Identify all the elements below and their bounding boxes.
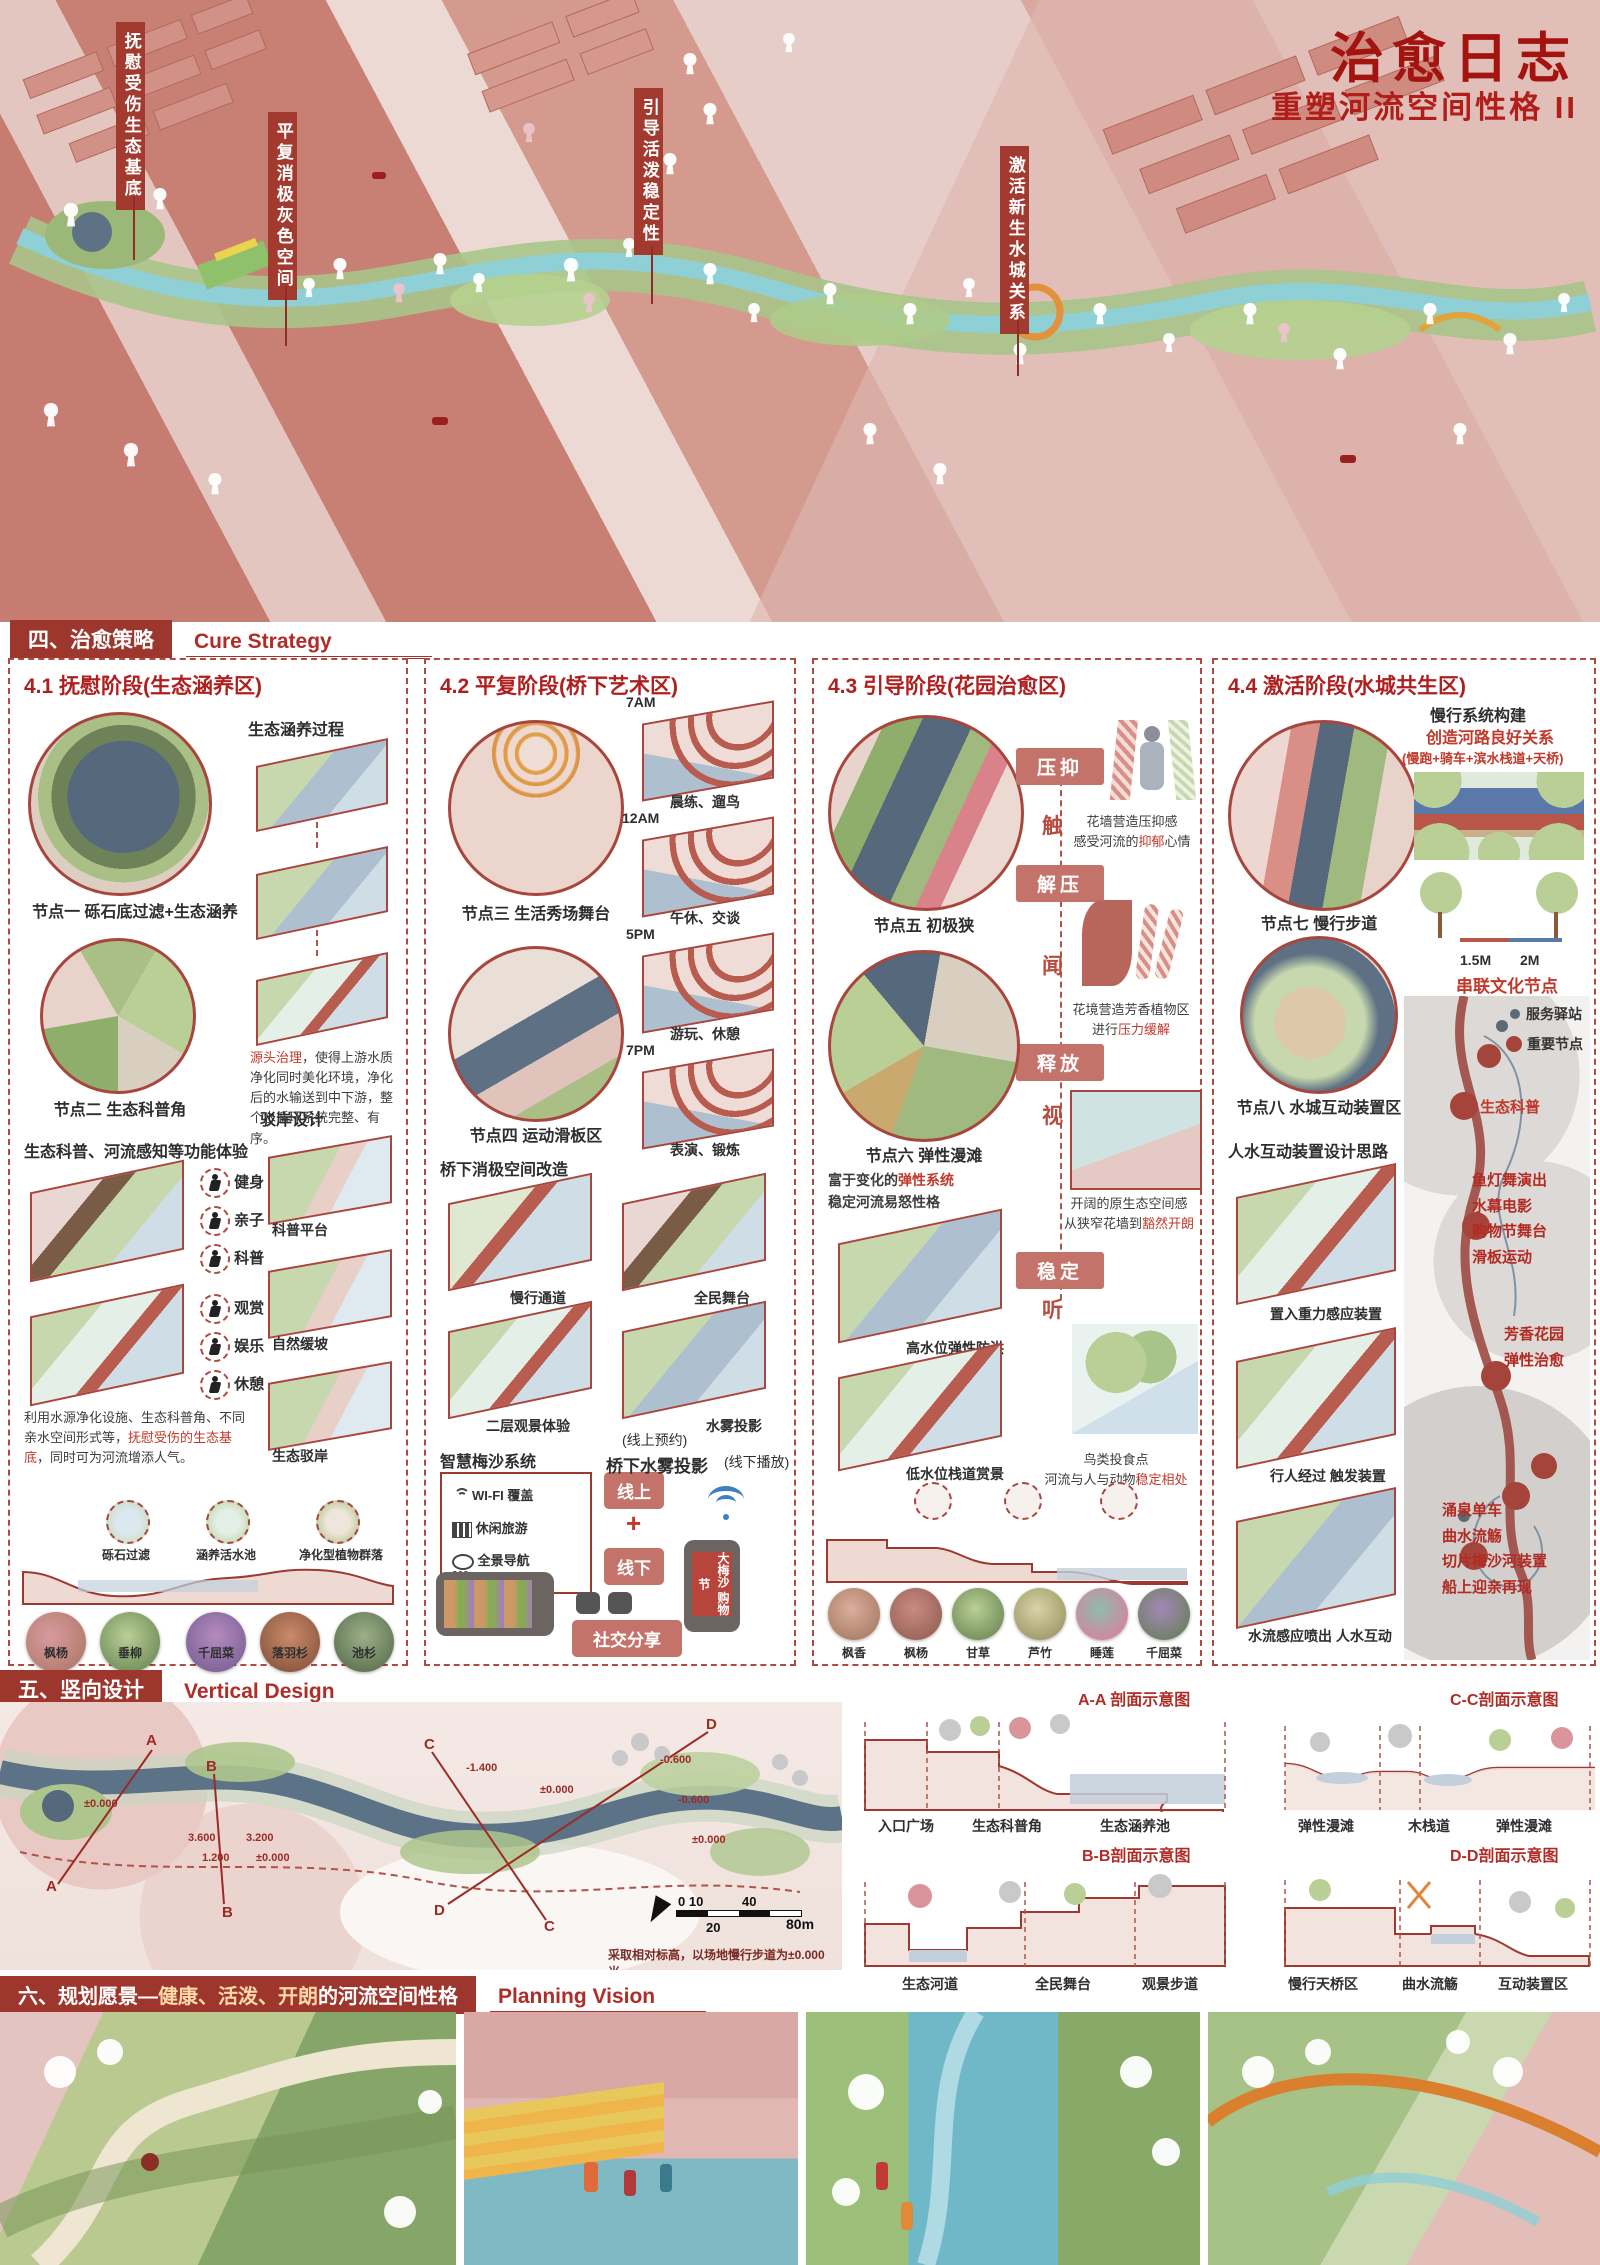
- viewing-icon: [200, 1294, 230, 1324]
- vision-render-underbridge: [464, 2012, 798, 2265]
- text-bird-red: 稳定相处: [1136, 1472, 1188, 1487]
- plant-label-1: 枫杨: [26, 1644, 86, 1661]
- text-scent: 花境营造芳香植物区进行压力缓解: [1062, 1000, 1200, 1040]
- riverbed-section-diagram: [18, 1560, 398, 1606]
- sense-touch: 触: [1042, 810, 1063, 840]
- low-water-diagram: [838, 1343, 1002, 1472]
- slow-system-line2: 创造河路良好关系: [1426, 724, 1554, 748]
- plant-photo-gancao: [952, 1588, 1004, 1640]
- profile-AA-label-3: 生态涵养池: [1100, 1816, 1170, 1836]
- renovation-diagram-1: [448, 1173, 592, 1292]
- figure-orange: [584, 2162, 598, 2192]
- interaction-diagram-2: [1236, 1327, 1396, 1469]
- legend-station: 服务驿站: [1510, 1004, 1582, 1024]
- plus-sign: +: [626, 1508, 641, 1539]
- plant-label-4: 落羽杉: [260, 1644, 320, 1661]
- event-3-2: 曲水流觞: [1442, 1524, 1547, 1550]
- rest-icon: [200, 1370, 230, 1400]
- renovation-label-4: 水雾投影: [706, 1416, 762, 1436]
- healing-paragraph: 利用水源净化设施、生态科普角、不同亲水空间形式等，抚慰受伤的生态基底，同时可为河…: [24, 1408, 250, 1468]
- hero-illustration: 抚慰受伤生态基底 平复消极灰色空间 引导活泼稳定性 激活新生水城关系 治愈日志 …: [0, 0, 1600, 622]
- cut-letter-C-bottom: C: [544, 1918, 555, 1935]
- process-label: 生态涵养过程: [248, 716, 344, 740]
- street-trunk-right: [1554, 912, 1558, 938]
- wifi-item: WI-FI 覆盖: [452, 1484, 533, 1504]
- node3-caption: 节点三 生活秀场舞台: [426, 900, 646, 924]
- column-4-3: 4.3 引导阶段(花园治愈区) 节点五 初极狭 压抑 触 解压 闻 释放 视 稳…: [812, 658, 1202, 1666]
- profile-CC-label-3: 弹性漫滩: [1496, 1816, 1552, 1836]
- event-3-1: 涌泉单车: [1442, 1498, 1547, 1524]
- hero-leader-4: [1017, 320, 1019, 376]
- vertical-design-plan: A A B B C C D D ±0.000 3.600 3.200 1.200…: [0, 1702, 842, 1970]
- conservation-diagram-3: [256, 952, 388, 1046]
- poster-subtitle: 重塑河流空间性格 II: [1271, 82, 1578, 127]
- events-list-2: 芳香花园 弹性治愈: [1504, 1322, 1564, 1373]
- text-open-red: 豁然开朗: [1142, 1216, 1194, 1231]
- events-list-1: 鱼灯舞演出 水幕电影 购物节舞台 滑板运动: [1472, 1168, 1547, 1270]
- text-repression-c: 心情: [1165, 834, 1191, 849]
- yellow-steps: [464, 2082, 664, 2180]
- scent-path: [1082, 900, 1132, 986]
- interaction-step-3: 水流感应喷出 人水互动: [1248, 1626, 1392, 1646]
- slow-system-line3: (慢跑+骑车+滨水栈道+天桥): [1402, 748, 1563, 767]
- time-7am: 7AM: [626, 694, 656, 710]
- profile-CC-label-1: 弹性漫滩: [1298, 1816, 1354, 1836]
- node6-caption: 节点六 弹性漫滩: [814, 1142, 1034, 1166]
- cut-letter-A-top: A: [146, 1732, 157, 1749]
- column-4-1: 4.1 抚慰阶段(生态涵养区) 节点一 砾石底过滤+生态涵养 生态涵养过程 源头…: [8, 658, 408, 1666]
- plant-photo-chishan: [334, 1612, 394, 1672]
- cut-letter-B-top: B: [206, 1758, 217, 1775]
- street-tree-left: [1420, 872, 1462, 914]
- gravel-filter-icon: [106, 1500, 150, 1544]
- plant-community-icon: [316, 1500, 360, 1544]
- plant3-label-5: 睡莲: [1076, 1644, 1128, 1661]
- offline-button: 线下: [604, 1548, 664, 1585]
- hero-leader-1: [133, 196, 135, 260]
- skybridge-art: [1208, 2012, 1600, 2265]
- node3-plan-image: [448, 720, 624, 896]
- elev-1: 3.600: [188, 1832, 216, 1844]
- street-tree-right: [1536, 872, 1578, 914]
- renovation-diagram-3: [448, 1301, 592, 1420]
- section6-header: 六、规划愿景—健康、活泼、开朗的河流空间性格 Planning Vision: [0, 1976, 706, 2014]
- cut-letter-D-bottom: D: [434, 1902, 445, 1919]
- elev-9: ±0.000: [692, 1834, 726, 1846]
- activity-leisure-label: 娱乐: [234, 1338, 264, 1355]
- wifi-icon: [452, 1484, 472, 1500]
- map-icon: [452, 1522, 472, 1538]
- plant3-label-6: 千屈菜: [1138, 1644, 1190, 1661]
- activity-viewing: 观赏: [200, 1294, 264, 1324]
- interaction-diagram-3: [1236, 1487, 1396, 1629]
- phone-app-tiles: [444, 1580, 532, 1628]
- terrace-diagram-7pm: [642, 1048, 774, 1149]
- elev-7: -0.600: [660, 1754, 691, 1766]
- profile-AA-title: A-A 剖面示意图: [1078, 1686, 1190, 1710]
- col1-title: 4.1 抚慰阶段(生态涵养区): [24, 670, 262, 700]
- panorama-label: 全景导航: [478, 1553, 530, 1568]
- walker-figure-body: [1140, 742, 1164, 790]
- node-dot-icon: [1506, 1036, 1522, 1052]
- elev-0: ±0.000: [84, 1798, 118, 1810]
- map-node-label: 生态科普: [1480, 1096, 1540, 1117]
- source-control-paragraph: 源头治理，使得上游水质净化同时美化环境，净化后的水输送到中下游，整个水循环系统完…: [250, 1048, 400, 1149]
- hero-label-1: 抚慰受伤生态基底: [116, 22, 145, 210]
- hero-label-2: 平复消极灰色空间: [268, 112, 297, 300]
- node6-plan-image: [828, 950, 1020, 1142]
- activity-science: 科普: [200, 1244, 264, 1274]
- event-1-3: 购物节舞台: [1472, 1219, 1547, 1245]
- street-trunk-left: [1438, 912, 1442, 938]
- parent-child-icon: [200, 1206, 230, 1236]
- time-7pm-activity: 表演、锻炼: [670, 1140, 740, 1160]
- dim-1-5m: 1.5M: [1460, 952, 1491, 968]
- node2-caption: 节点二 生态科普角: [10, 1096, 230, 1120]
- section6-title-a: 六、规划愿景—: [18, 1986, 158, 2008]
- bike-lane-bar: [1508, 938, 1562, 942]
- activity-fitness-label: 健身: [234, 1174, 264, 1191]
- science-icon: [200, 1244, 230, 1274]
- text-open-b: 从狭窄花墙到: [1064, 1216, 1142, 1231]
- col3-title: 4.3 引导阶段(花园治愈区): [828, 670, 1066, 700]
- scale-40: 40: [742, 1894, 756, 1909]
- profile-DD-label-1: 慢行天桥区: [1288, 1974, 1358, 1994]
- revetment-heading: 驳岸设计: [260, 1106, 324, 1130]
- cut-letter-D-top: D: [706, 1716, 717, 1733]
- fitness-icon: [200, 1168, 230, 1198]
- sight-image: [1070, 1090, 1202, 1190]
- profile-BB-label-1: 生态河道: [902, 1974, 958, 1994]
- reserve-note: (线上预约): [622, 1430, 687, 1450]
- renovation-diagram-4: [622, 1301, 766, 1420]
- column-4-4: 4.4 激活阶段(水城共生区) 节点七 慢行步道 慢行系统构建 创造河路良好关系…: [1212, 658, 1596, 1666]
- event-1-2: 水幕电影: [1472, 1194, 1547, 1220]
- section6-title-highlight: 健康、活泼、开朗: [158, 1986, 318, 2008]
- elev-6: ±0.000: [540, 1784, 574, 1796]
- experience-heading: 生态科普、河流感知等功能体验: [24, 1138, 248, 1162]
- stream-art: [806, 2012, 1200, 2265]
- badge-release: 释放: [1016, 1044, 1104, 1081]
- social-share-button: 社交分享: [572, 1620, 682, 1657]
- activity-rest: 休憩: [200, 1370, 264, 1400]
- plant-photo-shuilian: [1076, 1588, 1128, 1640]
- weibo-icon: [608, 1592, 632, 1619]
- panorama-eye-icon: [452, 1554, 474, 1570]
- elastic-text: 富于变化的弹性系统稳定河流易怒性格: [828, 1170, 1028, 1213]
- online-button: 线上: [604, 1472, 664, 1509]
- badge-stable: 稳定: [1016, 1252, 1104, 1289]
- renovation-diagram-2: [622, 1173, 766, 1292]
- conservation-diagram-2: [256, 846, 388, 940]
- node4-plan-image: [448, 946, 624, 1122]
- cut-letter-C-top: C: [424, 1736, 435, 1753]
- profile-CC-label-2: 木栈道: [1408, 1816, 1450, 1836]
- elastic-a: 富于变化的: [828, 1172, 898, 1188]
- callout-reeds-icon: [1004, 1482, 1042, 1520]
- terrace-diagram-7am: [642, 700, 774, 801]
- cut-letter-B-bottom: B: [222, 1904, 233, 1921]
- section6-title-b: 的河流空间性格: [318, 1986, 458, 2008]
- activity-rest-label: 休憩: [234, 1376, 264, 1393]
- interaction-step-2: 行人经过 触发装置: [1270, 1466, 1386, 1486]
- listening-image: [1072, 1324, 1198, 1434]
- plant3-label-4: 芦竹: [1014, 1644, 1066, 1661]
- river-section-diagram: [822, 1522, 1192, 1586]
- node2-plan-image: [40, 938, 196, 1094]
- event-3-3: 切片梅沙河装置: [1442, 1549, 1547, 1575]
- text-repression-red: 抑郁: [1138, 834, 1164, 849]
- terrace-diagram-5pm: [642, 932, 774, 1033]
- elev-4: ±0.000: [256, 1852, 290, 1864]
- interaction-step-1: 置入重力感应装置: [1270, 1304, 1382, 1324]
- event-2-2: 弹性治愈: [1504, 1348, 1564, 1374]
- text-bird-a: 鸟类投食点: [1083, 1452, 1148, 1467]
- section4-title: 四、治愈策略: [10, 620, 172, 659]
- plant-photo-qianqucai: [186, 1612, 246, 1672]
- process-arrow-2: [316, 930, 318, 956]
- vision-render-stream: [806, 2012, 1200, 2265]
- waterside-diagram-2: [30, 1284, 184, 1407]
- node1-caption: 节点一 砾石底过滤+生态涵养: [10, 898, 260, 922]
- text-repression: 花墙营造压抑感感受河流的抑郁心情: [1066, 812, 1198, 852]
- event-2-1: 芳香花园: [1504, 1322, 1564, 1348]
- text-repression-b: 感受河流的: [1073, 834, 1138, 849]
- column-4-2: 4.2 平复阶段(桥下艺术区) 节点三 生活秀场舞台 节点四 运动滑板区 7AM…: [424, 658, 796, 1666]
- sense-smell: 闻: [1042, 950, 1063, 980]
- section4-title-en: Cure Strategy: [186, 630, 432, 659]
- activity-viewing-label: 观赏: [234, 1300, 264, 1317]
- slow-system-heading: 慢行系统构建: [1430, 702, 1526, 726]
- jog-lane-bar: [1460, 938, 1508, 942]
- flower-wall-right: [1168, 720, 1196, 800]
- legend-station-label: 服务驿站: [1526, 1006, 1582, 1022]
- activity-family: 亲子: [200, 1206, 264, 1236]
- revetment-label-1: 科普平台: [272, 1220, 328, 1240]
- legend-node: 重要节点: [1506, 1034, 1583, 1054]
- datum-note: 采取相对标高，以场地慢行步道为±0.000米。: [608, 1946, 842, 1970]
- node8-plan-image: [1240, 936, 1398, 1094]
- node1-plan-image: [28, 712, 212, 896]
- terrace-diagram-12am: [642, 816, 774, 917]
- plant3-label-1: 枫香: [828, 1644, 880, 1661]
- hero-label-3: 引导活泼稳定性: [634, 88, 663, 255]
- plant-photo-chuiliu: [100, 1612, 160, 1672]
- source-control-highlight: 源头治理: [250, 1050, 302, 1065]
- profile-BB-label-3: 观景步道: [1142, 1974, 1198, 1994]
- play-note: (线下播放): [724, 1452, 789, 1472]
- revetment-diagram-3: [268, 1361, 392, 1451]
- node7-plan-image: [1228, 720, 1419, 911]
- hero-leader-2: [285, 286, 287, 346]
- plant-photo-fengyang: [26, 1612, 86, 1672]
- plant-photo-fengyang2: [890, 1588, 942, 1640]
- node5-caption: 节点五 初极狭: [814, 912, 1034, 936]
- interaction-idea-heading: 人水互动装置设计思路: [1228, 1138, 1388, 1162]
- text-repression-a: 花墙营造压抑感: [1086, 814, 1177, 829]
- leisure-icon: [200, 1332, 230, 1362]
- process-arrow-1: [316, 822, 318, 848]
- wifi-label: WI-FI 覆盖: [472, 1488, 533, 1503]
- time-12am: 12AM: [622, 810, 659, 826]
- interaction-diagram-1: [1236, 1163, 1396, 1305]
- elev-2: 3.200: [246, 1832, 274, 1844]
- waterside-diagram-1: [30, 1160, 184, 1283]
- figure-teal: [660, 2164, 672, 2192]
- figure-red: [624, 2170, 636, 2196]
- badge-decompress: 解压: [1016, 865, 1104, 902]
- plant-photo-luzhu: [1014, 1588, 1066, 1640]
- time-5pm-activity: 游玩、休憩: [670, 1024, 740, 1044]
- profile-AA-label-2: 生态科普角: [972, 1816, 1042, 1836]
- profile-CC-title: C-C剖面示意图: [1450, 1686, 1558, 1710]
- hero-leader-3: [651, 246, 653, 304]
- profile-DD: [1280, 1868, 1595, 1968]
- plant3-label-2: 枫杨: [890, 1644, 942, 1661]
- events-list-3: 涌泉单车 曲水流觞 切片梅沙河装置 船上迎亲再现: [1442, 1498, 1547, 1600]
- profile-DD-label-2: 曲水流觞: [1402, 1974, 1458, 1994]
- profile-AA-label-1: 入口广场: [878, 1816, 934, 1836]
- profile-AA: [860, 1712, 1230, 1812]
- time-7pm: 7PM: [626, 1042, 655, 1058]
- scale-0-10: 0 10: [678, 1894, 703, 1909]
- plant-photo-luoyushan: [260, 1612, 320, 1672]
- plant-label-2: 垂柳: [100, 1644, 160, 1661]
- plant3-label-3: 甘草: [952, 1644, 1004, 1661]
- renovation-label-1: 慢行通道: [510, 1288, 566, 1308]
- high-water-diagram: [838, 1209, 1002, 1344]
- tourism-label: 休闲旅游: [476, 1521, 528, 1536]
- text-open: 开阔的原生态空间感从狭窄花墙到豁然开朗: [1058, 1194, 1200, 1234]
- culture-heading: 串联文化节点: [1456, 972, 1558, 997]
- scale-80m: 80m: [786, 1916, 814, 1932]
- profile-DD-title: D-D剖面示意图: [1450, 1842, 1558, 1866]
- flower-wall-left: [1110, 720, 1138, 800]
- station-dot-icon: [1510, 1009, 1520, 1019]
- phone-screen-text: 大梅沙 购物节: [692, 1552, 732, 1616]
- scale-bar: [676, 1910, 802, 1917]
- section6-title: 六、规划愿景—健康、活泼、开朗的河流空间性格: [0, 1976, 476, 2014]
- fog-projection-label: 桥下水雾投影: [606, 1452, 708, 1477]
- section4-header: 四、治愈策略 Cure Strategy: [10, 620, 432, 659]
- node5-plan-image: [828, 715, 1024, 911]
- walk-label: 低水位栈道赏景: [906, 1464, 1004, 1484]
- activity-family-label: 亲子: [234, 1212, 264, 1229]
- callout-bird-icon: [1100, 1482, 1138, 1520]
- sense-hear: 听: [1042, 1294, 1063, 1324]
- time-5pm: 5PM: [626, 926, 655, 942]
- tourism-item: 休闲旅游: [452, 1518, 528, 1538]
- healing-text-b: ，同时可为河流增添人气。: [37, 1450, 193, 1465]
- revetment-label-3: 生态驳岸: [272, 1446, 328, 1466]
- profile-BB-title: B-B剖面示意图: [1082, 1842, 1190, 1866]
- node7-caption: 节点七 慢行步道: [1214, 910, 1424, 934]
- time-12am-activity: 午休、交谈: [670, 908, 740, 928]
- text-scent-b: 进行: [1092, 1022, 1118, 1037]
- garden-path-art: [0, 2012, 456, 2265]
- vision-render-skybridge: [1208, 2012, 1600, 2265]
- dim-2m: 2M: [1520, 952, 1539, 968]
- callout-person-icon: [914, 1482, 952, 1520]
- phone-landscape: [436, 1572, 554, 1636]
- pond-icon: [206, 1500, 250, 1544]
- street-section-diagram: [1420, 872, 1580, 946]
- scale-20: 20: [706, 1920, 720, 1935]
- profile-DD-label-3: 互动装置区: [1498, 1974, 1568, 1994]
- hero-label-4: 激活新生水城关系: [1000, 146, 1029, 334]
- node4-caption: 节点四 运动滑板区: [426, 1122, 646, 1146]
- elastic-b: 稳定河流易怒性格: [828, 1194, 940, 1210]
- plant-label-5: 池杉: [334, 1644, 394, 1661]
- revetment-diagram-2: [268, 1249, 392, 1339]
- revetment-label-2: 自然缓坡: [272, 1334, 328, 1354]
- event-1-1: 鱼灯舞演出: [1472, 1168, 1547, 1194]
- wechat-icon: [576, 1592, 600, 1619]
- renovation-label-3: 二层观景体验: [486, 1416, 570, 1436]
- big-wifi-icon: [708, 1486, 744, 1513]
- badge-repression: 压抑: [1016, 748, 1104, 785]
- scent-bed-2: [1153, 907, 1184, 980]
- smart-system-heading: 智慧梅沙系统: [440, 1448, 536, 1472]
- profile-CC: [1280, 1712, 1595, 1812]
- elev-3: 1.200: [202, 1852, 230, 1864]
- time-7am-activity: 晨练、遛鸟: [670, 792, 740, 812]
- elev-5: -1.400: [466, 1762, 497, 1774]
- vision-render-garden: [0, 2012, 456, 2265]
- col4-title: 4.4 激活阶段(水城共生区): [1228, 670, 1466, 700]
- plant-label-3: 千屈菜: [186, 1644, 246, 1661]
- conservation-diagram-1: [256, 738, 388, 832]
- sense-sight: 视: [1042, 1100, 1063, 1130]
- cut-letter-A-bottom: A: [46, 1878, 57, 1895]
- legend-node-label: 重要节点: [1527, 1036, 1583, 1052]
- event-1-4: 滑板运动: [1472, 1245, 1547, 1271]
- elastic-red: 弹性系统: [898, 1172, 954, 1188]
- renovation-heading: 桥下消极空间改造: [440, 1156, 568, 1180]
- phone-in-hand: 大梅沙 购物节: [684, 1540, 740, 1632]
- profile-BB: [860, 1868, 1230, 1968]
- node8-caption: 节点八 水城互动装置区: [1214, 1094, 1424, 1118]
- section6-title-en: Planning Vision: [490, 1985, 706, 2014]
- walker-figure-head: [1144, 726, 1160, 742]
- elev-8: -0.600: [678, 1794, 709, 1806]
- plant-photo-qianqucai2: [1138, 1588, 1190, 1640]
- activity-leisure: 娱乐: [200, 1332, 264, 1362]
- activity-science-label: 科普: [234, 1250, 264, 1267]
- text-scent-a: 花境营造芳香植物区: [1072, 1002, 1189, 1017]
- text-scent-red: 压力缓解: [1118, 1022, 1170, 1037]
- lane-plan-diagram: [1414, 772, 1584, 860]
- profile-BB-label-2: 全民舞台: [1035, 1974, 1091, 1994]
- text-open-a: 开阔的原生态空间感: [1070, 1196, 1187, 1211]
- event-3-4: 船上迎亲再现: [1442, 1575, 1547, 1601]
- plant-photo-fengxiang: [828, 1588, 880, 1640]
- activity-fitness: 健身: [200, 1168, 264, 1198]
